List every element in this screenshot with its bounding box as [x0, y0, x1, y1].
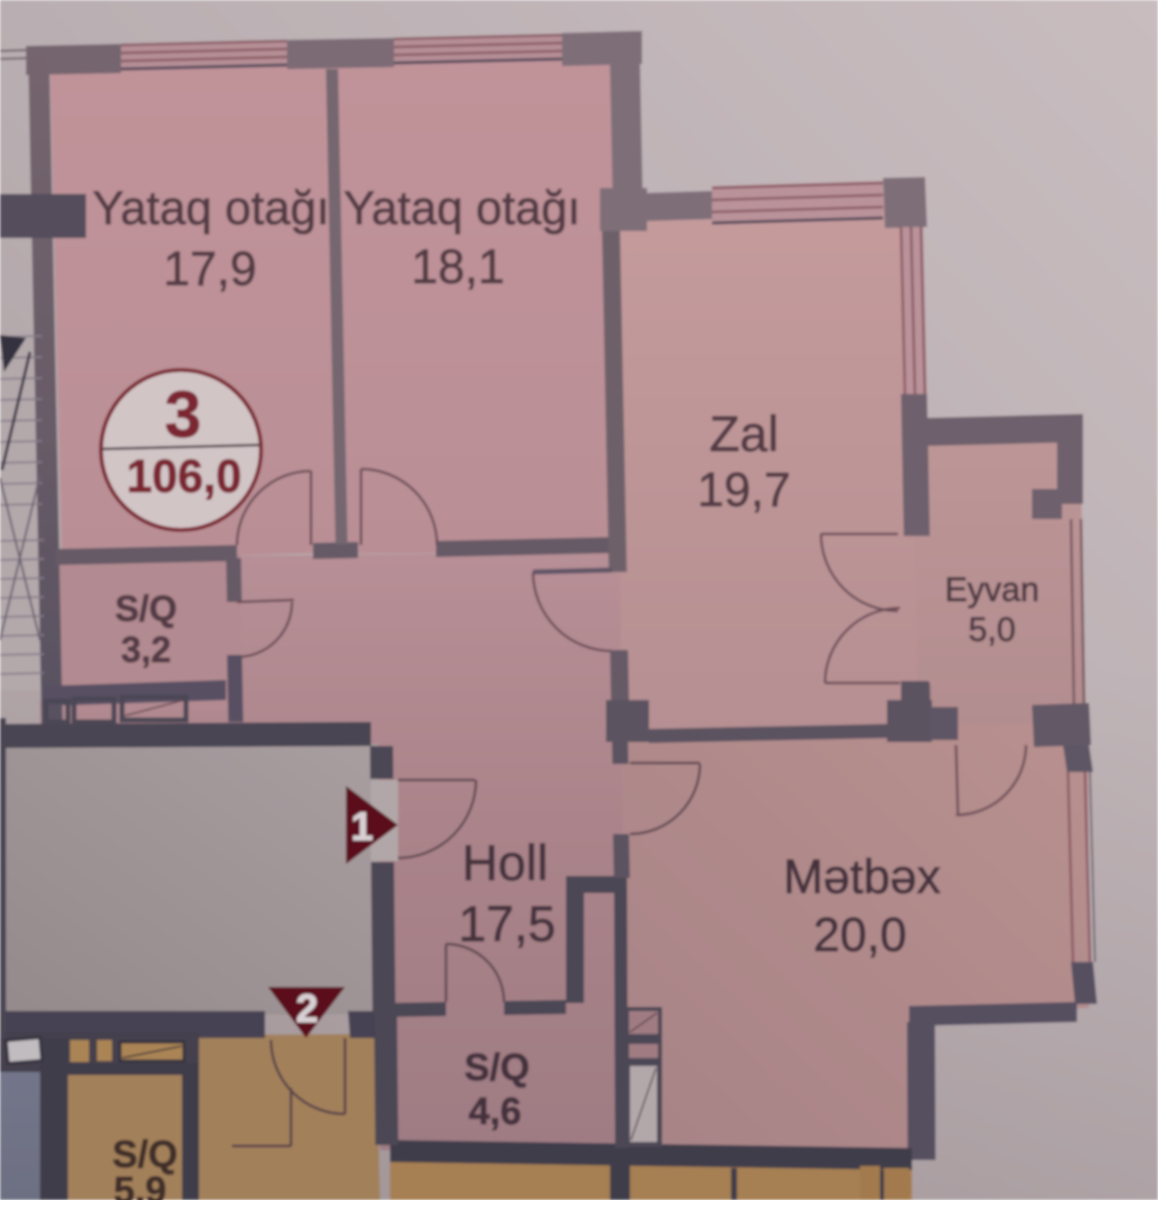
svg-text:3,2: 3,2: [121, 629, 171, 670]
svg-text:5,9: 5,9: [114, 1170, 167, 1200]
svg-text:Yataq otağı: Yataq otağı: [93, 181, 330, 234]
svg-text:Zal: Zal: [709, 406, 778, 462]
svg-text:Mətbəx: Mətbəx: [783, 851, 940, 904]
svg-text:18,1: 18,1: [411, 241, 504, 294]
svg-text:17,9: 17,9: [163, 243, 256, 296]
svg-text:4,6: 4,6: [469, 1091, 522, 1133]
svg-text:S/Q: S/Q: [464, 1047, 529, 1089]
svg-text:5,0: 5,0: [968, 611, 1015, 649]
svg-text:S/Q: S/Q: [115, 588, 177, 629]
svg-text:Eyvan: Eyvan: [945, 571, 1040, 609]
svg-text:19,7: 19,7: [697, 464, 790, 517]
svg-text:Yataq otağı: Yataq otağı: [344, 181, 581, 234]
svg-text:3: 3: [165, 377, 202, 451]
svg-text:1: 1: [351, 805, 373, 849]
svg-text:Holl: Holl: [462, 835, 548, 891]
svg-text:17,5: 17,5: [458, 896, 555, 952]
svg-text:2: 2: [296, 987, 318, 1031]
svg-text:20,0: 20,0: [813, 909, 906, 962]
svg-text:106,0: 106,0: [126, 450, 241, 502]
